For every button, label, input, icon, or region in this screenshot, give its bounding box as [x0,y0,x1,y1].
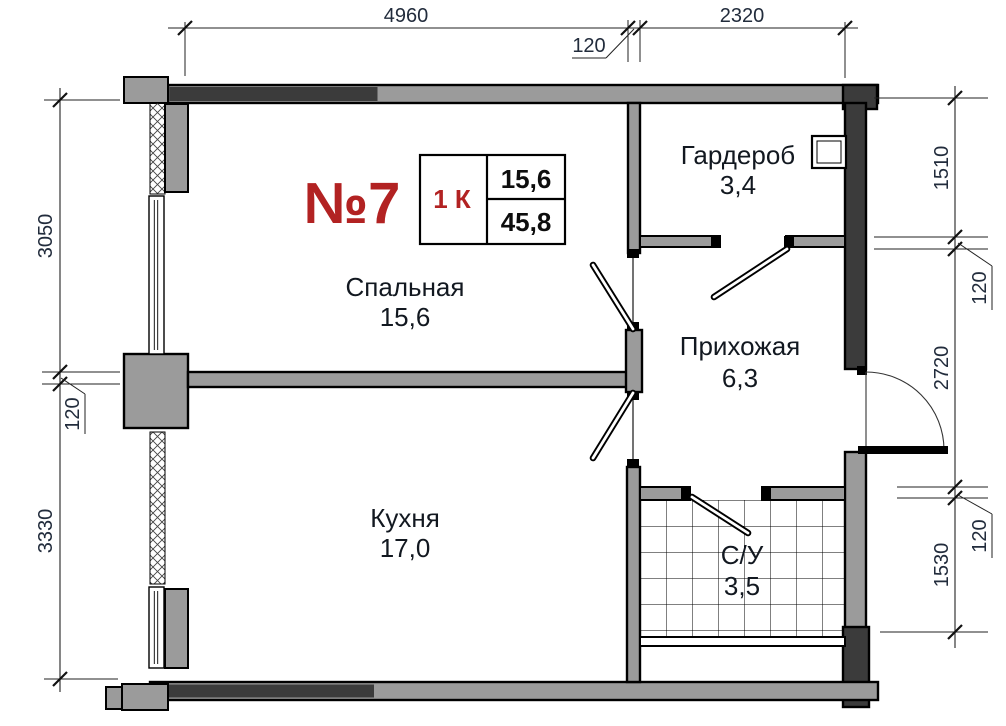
apartment-number: №7 [304,171,401,236]
wall-bathroom-top-right [762,487,845,500]
wall-kitchen-bathroom [627,467,640,682]
wall-bedroom-kitchen [188,372,628,387]
door-kitchen [593,393,633,458]
corner-top-left [124,77,168,103]
wardrobe-niche [812,136,846,168]
dimensions-left: 3050 3330 120 [35,88,120,692]
kitchen-area: 17,0 [380,533,431,563]
floor-plan-svg: 4960 2320 120 3050 3330 120 [0,0,1006,726]
bedroom-area: 15,6 [380,302,431,332]
jamb-kitchen-door-bottom [627,459,639,467]
dimensions-top: 4960 2320 120 [168,5,858,78]
apartment-card: №7 1 К 15,6 45,8 [304,155,565,244]
jamb-bedroom-door-top [627,249,639,258]
hallway-area: 6,3 [722,363,758,393]
dim-left-3330: 3330 [35,509,57,554]
jamb-bathroom-right [761,488,771,500]
wall-top-dark-segment [170,87,378,101]
dim-left-120: 120 [62,397,84,430]
dim-right-1510: 1510 [931,146,953,191]
facade-hatch-pier-upper [150,103,165,194]
wardrobe-area: 3,4 [720,170,756,200]
dimensions-right: 1510 2720 1530 120 120 [874,86,992,648]
window-kitchen [149,587,164,668]
apartment-living-area: 15,6 [501,164,552,194]
wall-right-middle [845,452,866,629]
jamb-wardrobe-right [784,236,794,247]
hallway-label: Прихожая [680,331,800,361]
facade-pier-lower [165,589,188,668]
wall-wardrobe-bottom-right [786,236,845,247]
corner-bottom-left-step [106,687,122,709]
door-wardrobe [714,249,787,297]
facade-hatch-pier-lower [150,432,165,584]
bedroom-label: Спальная [346,272,465,302]
wall-bottom-dark-segment [169,685,374,698]
window-bedroom [149,196,164,354]
dim-right-120-lower: 120 [969,519,991,552]
apartment-total-area: 45,8 [501,207,552,237]
wall-bathroom-bottom [640,637,845,646]
wall-wardrobe-bottom-left [640,236,720,247]
floor-plan-page: 4960 2320 120 3050 3330 120 [0,0,1006,726]
dim-right-2720: 2720 [931,346,953,391]
dim-right-1530: 1530 [931,543,953,588]
dim-top-4960: 4960 [384,5,429,27]
wall-right-upper [845,103,866,369]
wardrobe-label: Гардероб [681,140,795,170]
dim-left-3050: 3050 [35,214,57,259]
bathroom-area: 3,5 [724,571,760,601]
dim-top-120: 120 [572,35,605,57]
wall-stub-doors [626,330,642,392]
corner-bottom-left [122,684,168,710]
dim-right-120-upper: 120 [969,271,991,304]
facade-pier-middle [124,354,188,428]
kitchen-label: Кухня [370,503,440,533]
facade-pier-upper [165,104,188,192]
apartment-rooms-type: 1 К [433,184,471,214]
door-bedroom [593,265,633,329]
dim-top-2320: 2320 [720,5,765,27]
wall-bedroom-wardrobe [628,103,640,253]
bathroom-label: С/У [721,540,764,570]
jamb-wardrobe-left [711,236,721,247]
entrance-landing-wall [858,446,948,454]
